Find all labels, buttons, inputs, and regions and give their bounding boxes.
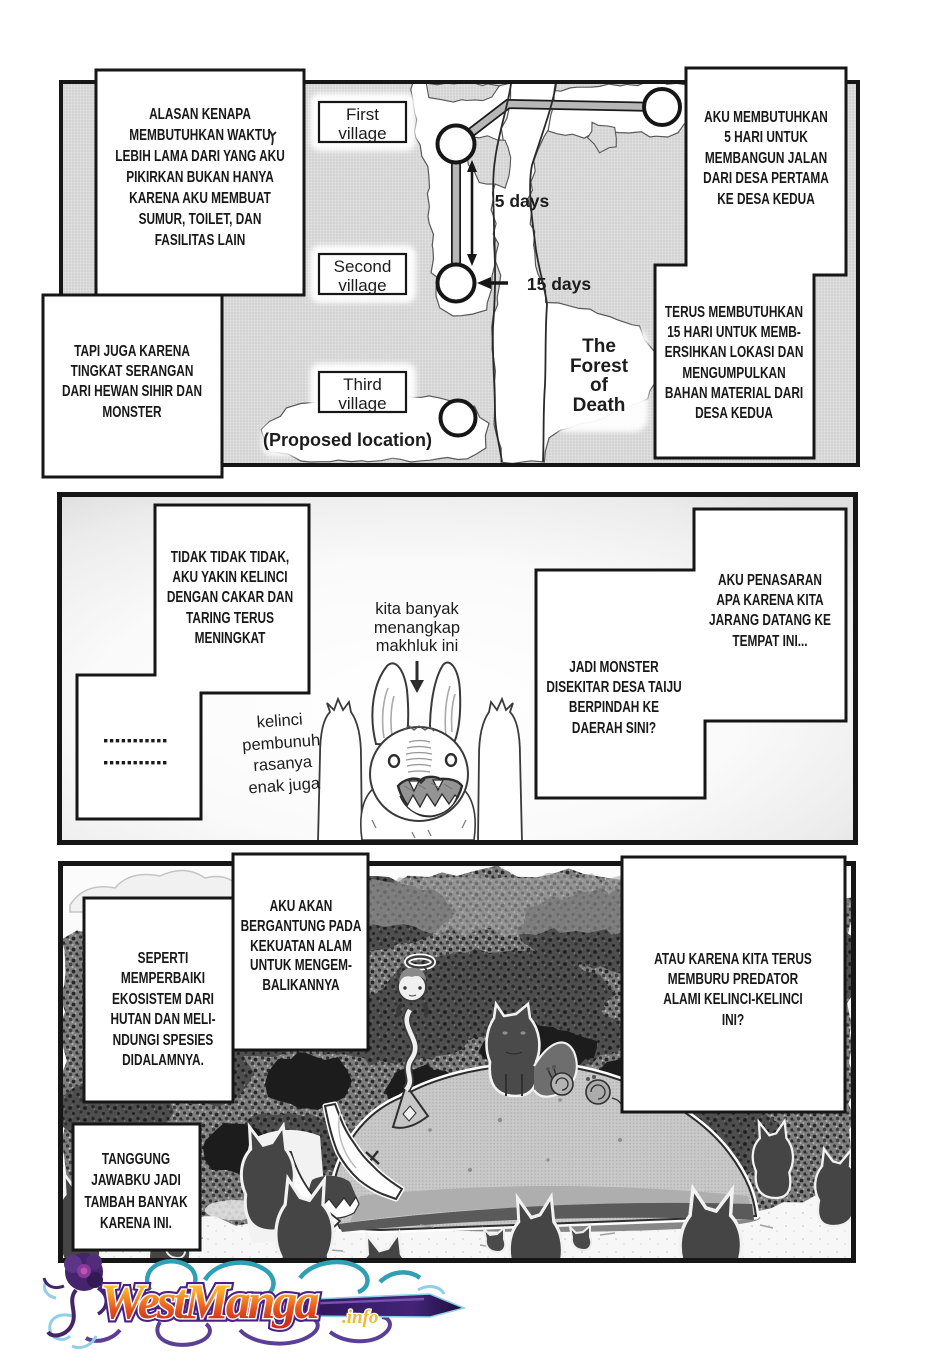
- svg-text:WestManga: WestManga: [100, 1273, 319, 1329]
- svg-text:.info: .info: [342, 1307, 378, 1328]
